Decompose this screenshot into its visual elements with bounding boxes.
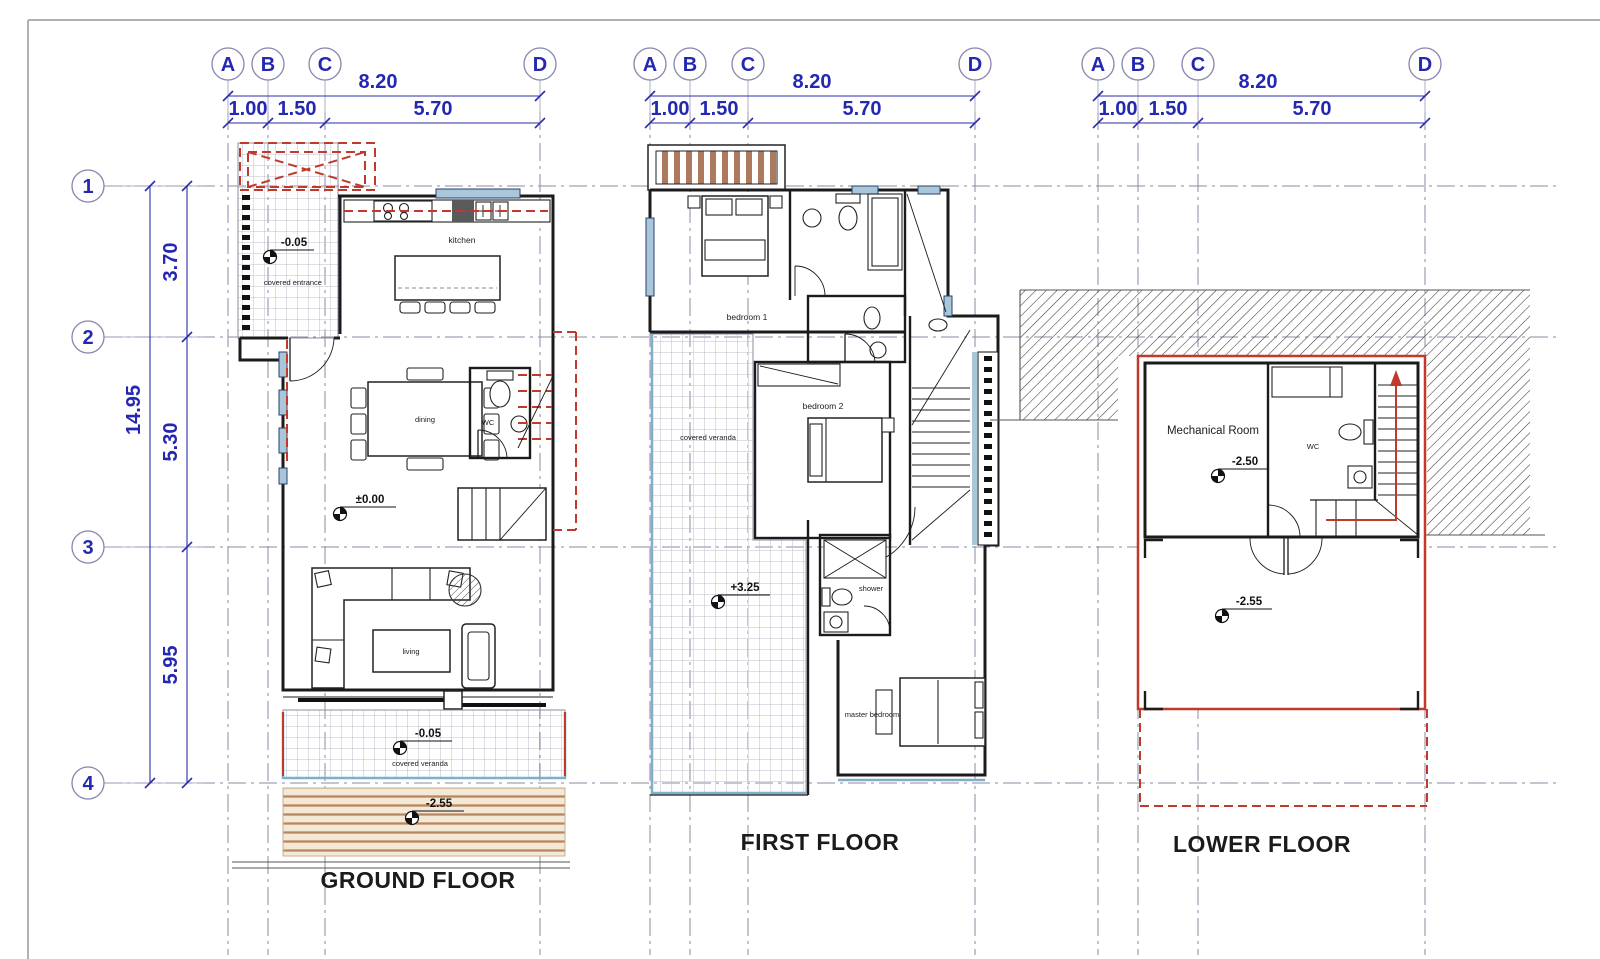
stairwell bbox=[912, 319, 970, 540]
grid-number: 1 bbox=[82, 176, 93, 198]
grid-number: 4 bbox=[82, 773, 94, 795]
grid-letter: C bbox=[1191, 54, 1205, 76]
dim-segment: 1.50 bbox=[700, 98, 739, 120]
stair-glazing bbox=[972, 352, 977, 545]
column-grid-header-first: A B C D 8.20 1.00 1.50 5.70 bbox=[634, 48, 991, 128]
grid-letter: B bbox=[1131, 54, 1145, 76]
room-label-bedroom2: bedroom 2 bbox=[803, 401, 844, 411]
dim-segment-vertical: 5.95 bbox=[160, 646, 182, 685]
dim-segment: 1.50 bbox=[278, 98, 317, 120]
window bbox=[918, 186, 940, 194]
dim-total: 8.20 bbox=[1239, 71, 1278, 93]
ground-floor-title: GROUND FLOOR bbox=[320, 867, 515, 893]
dim-total-vertical: 14.95 bbox=[123, 385, 145, 435]
window bbox=[852, 186, 878, 194]
bathroom-2 bbox=[845, 307, 886, 362]
dim-total: 8.20 bbox=[359, 71, 398, 93]
room-label-covered-veranda: covered veranda bbox=[680, 433, 737, 442]
room-label-dining: dining bbox=[415, 415, 435, 424]
dim-total: 8.20 bbox=[793, 71, 832, 93]
room-label-shower: shower bbox=[859, 584, 884, 593]
grid-letter: D bbox=[533, 54, 547, 76]
lower-floor-title: LOWER FLOOR bbox=[1173, 831, 1351, 857]
dim-segment-vertical: 3.70 bbox=[160, 243, 182, 282]
grid-letter: B bbox=[261, 54, 275, 76]
bedroom-2 bbox=[758, 364, 894, 482]
room-label-bedroom1: bedroom 1 bbox=[727, 312, 768, 322]
ground-floor-plan: -0.05 covered entrance bbox=[232, 143, 576, 893]
row-grid-header: 1 2 3 4 14.95 3.70 5.30 5.95 bbox=[72, 170, 205, 799]
window bbox=[646, 218, 654, 296]
dim-segment: 5.70 bbox=[843, 98, 882, 120]
first-floor-title: FIRST FLOOR bbox=[741, 829, 900, 855]
bath2-walls bbox=[808, 296, 905, 362]
window bbox=[944, 296, 952, 316]
covered-veranda-area bbox=[652, 334, 806, 793]
grid-letter: A bbox=[643, 54, 657, 76]
svg-text:+3.25: +3.25 bbox=[730, 582, 760, 594]
room-label-living: living bbox=[402, 647, 419, 656]
grid-letter: C bbox=[741, 54, 755, 76]
svg-text:-2.55: -2.55 bbox=[1236, 596, 1263, 608]
window bbox=[279, 428, 287, 453]
lower-floor-outline bbox=[1138, 356, 1425, 709]
window bbox=[279, 468, 287, 484]
bed-1 bbox=[688, 196, 782, 276]
entry-door bbox=[290, 338, 334, 381]
level-marker-main: ±0.00 bbox=[334, 494, 397, 521]
svg-text:-2.55: -2.55 bbox=[426, 798, 453, 810]
svg-text:-2.50: -2.50 bbox=[1232, 456, 1258, 468]
grid-letter: B bbox=[683, 54, 697, 76]
svg-text:±0.00: ±0.00 bbox=[356, 494, 385, 506]
armchair bbox=[462, 624, 495, 688]
room-label-wc: WC bbox=[482, 418, 495, 427]
dim-segment: 1.00 bbox=[229, 98, 268, 120]
room-label-master: master bedroom bbox=[845, 710, 900, 719]
dim-segment: 1.50 bbox=[1149, 98, 1188, 120]
floor-plans-drawing: A B C D 8.20 1.00 1.50 5.70 A B C D 8.20… bbox=[0, 0, 1600, 959]
dim-segment: 1.00 bbox=[651, 98, 690, 120]
sliding-door bbox=[283, 691, 553, 709]
pergola-strip bbox=[978, 352, 998, 545]
kitchen-island bbox=[395, 256, 500, 313]
column-grid-header-ground: A B C D 8.20 1.00 1.50 5.70 bbox=[212, 48, 556, 128]
dim-segment: 1.00 bbox=[1099, 98, 1138, 120]
dim-segment: 5.70 bbox=[1293, 98, 1332, 120]
dim-segment: 5.70 bbox=[414, 98, 453, 120]
stairs-lower bbox=[458, 488, 546, 540]
grid-letter: D bbox=[968, 54, 982, 76]
drawing-sheet: A B C D 8.20 1.00 1.50 5.70 A B C D 8.20… bbox=[0, 0, 1600, 959]
grid-letter: A bbox=[1091, 54, 1105, 76]
lower-floor-plan: WC Mechanical Room -2.50 bbox=[990, 290, 1545, 857]
projection-dashed bbox=[1140, 709, 1427, 806]
grid-letter: C bbox=[318, 54, 332, 76]
grid-letter: A bbox=[221, 54, 235, 76]
column-grid-header-lower: A B C D 8.20 1.00 1.50 5.70 bbox=[1082, 48, 1441, 128]
grid-number: 3 bbox=[82, 537, 93, 559]
svg-text:-0.05: -0.05 bbox=[415, 728, 442, 740]
wood-deck bbox=[283, 788, 565, 856]
balcony bbox=[648, 145, 785, 190]
window bbox=[279, 352, 287, 377]
room-label-wc: WC bbox=[1307, 442, 1320, 451]
grid-number: 2 bbox=[82, 327, 93, 349]
rug bbox=[449, 574, 481, 606]
room-label-mechanical: Mechanical Room bbox=[1167, 425, 1259, 437]
room-label-covered-entrance: covered entrance bbox=[264, 278, 322, 287]
svg-text:-0.05: -0.05 bbox=[281, 237, 308, 249]
first-floor-plan: bedroom 1 bbox=[646, 145, 998, 855]
closet bbox=[907, 194, 946, 312]
dim-segment-vertical: 5.30 bbox=[160, 423, 182, 462]
room-label-kitchen: kitchen bbox=[449, 235, 476, 245]
kitchen-window bbox=[436, 189, 520, 198]
window bbox=[279, 390, 287, 415]
room-label-covered-veranda: covered veranda bbox=[392, 759, 449, 768]
bathroom-1 bbox=[795, 194, 902, 296]
grid-letter: D bbox=[1418, 54, 1432, 76]
